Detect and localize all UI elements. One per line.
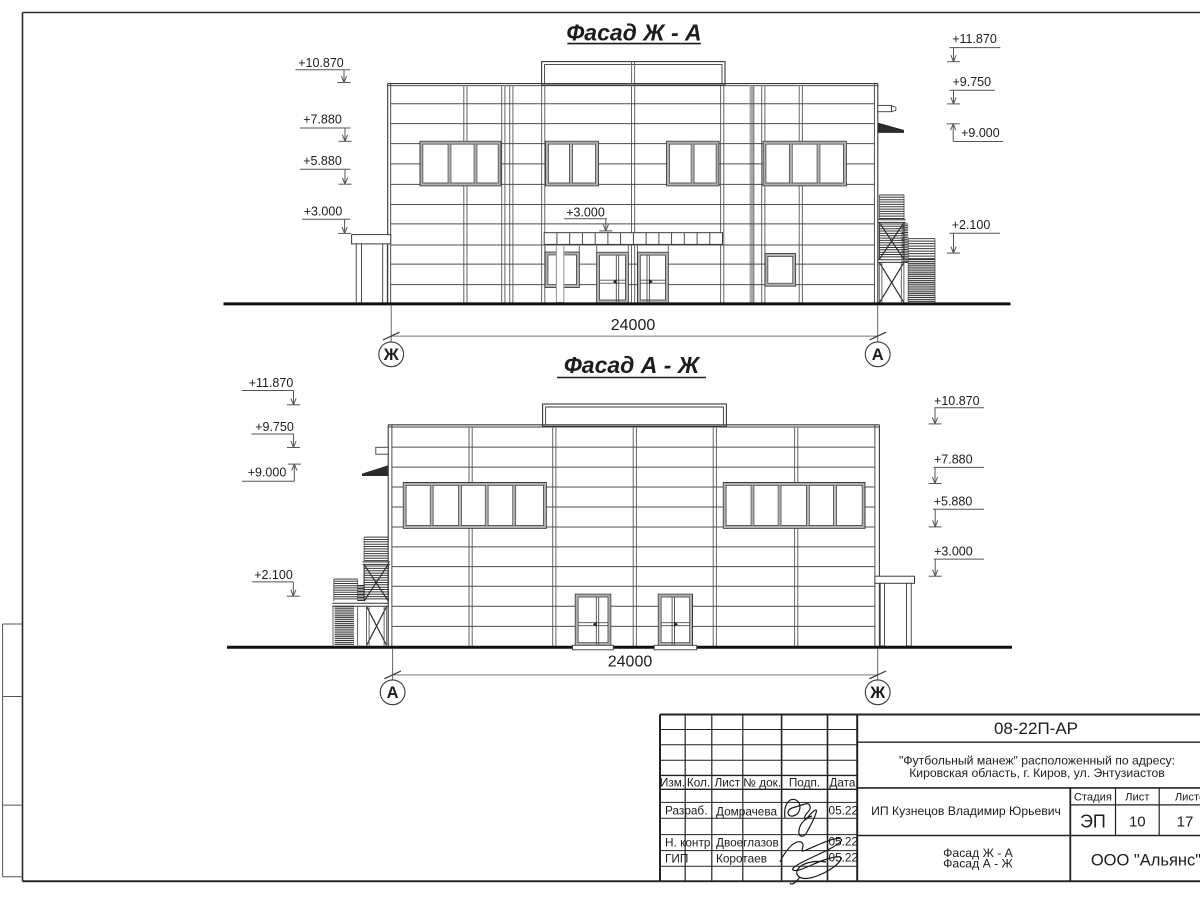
svg-text:Домрачева: Домрачева bbox=[716, 804, 777, 818]
svg-text:Дата: Дата bbox=[829, 775, 856, 789]
svg-text:ГИП: ГИП bbox=[665, 851, 688, 865]
svg-text:А: А bbox=[872, 346, 884, 364]
svg-text:Листов: Листов bbox=[1175, 791, 1200, 803]
svg-text:05.22: 05.22 bbox=[829, 803, 859, 817]
svg-text:Изм.: Изм. bbox=[660, 775, 685, 789]
svg-text:+5.880: +5.880 bbox=[934, 495, 973, 509]
svg-text:Фасад А - Ж: Фасад А - Ж bbox=[564, 352, 701, 378]
svg-text:Лист: Лист bbox=[714, 775, 740, 789]
svg-text:+7.880: +7.880 bbox=[934, 453, 973, 467]
svg-text:ИП Кузнецов Владимир Юрьевич: ИП Кузнецов Владимир Юрьевич bbox=[871, 804, 1061, 818]
svg-text:+10.870: +10.870 bbox=[298, 56, 344, 70]
svg-text:А: А bbox=[387, 684, 399, 702]
svg-text:24000: 24000 bbox=[611, 317, 656, 334]
svg-text:Ж: Ж bbox=[869, 684, 885, 702]
svg-text:Фасад Ж - А: Фасад Ж - А bbox=[566, 20, 701, 46]
svg-text:+11.870: +11.870 bbox=[952, 32, 997, 46]
svg-text:Н. контр.: Н. контр. bbox=[665, 835, 714, 849]
svg-text:+11.870: +11.870 bbox=[249, 376, 294, 390]
svg-text:Кол.: Кол. bbox=[687, 775, 710, 789]
svg-text:+2.100: +2.100 bbox=[952, 218, 991, 232]
svg-text:Двоеглазов: Двоеглазов bbox=[716, 835, 779, 849]
svg-text:ООО "Альянс": ООО "Альянс" bbox=[1091, 852, 1200, 870]
svg-text:+9.000: +9.000 bbox=[961, 126, 1000, 140]
svg-text:+3.000: +3.000 bbox=[934, 544, 973, 558]
svg-text:Лист: Лист bbox=[1125, 791, 1149, 803]
svg-text:Ж: Ж bbox=[383, 346, 399, 364]
svg-text:+5.880: +5.880 bbox=[303, 154, 342, 168]
svg-text:Фасад А - Ж: Фасад А - Ж bbox=[943, 857, 1013, 871]
svg-text:№ док.: № док. bbox=[743, 775, 781, 789]
svg-text:ЭП: ЭП bbox=[1080, 812, 1106, 832]
svg-text:+9.750: +9.750 bbox=[953, 75, 992, 89]
svg-text:Кировская область, г. Киров, у: Кировская область, г. Киров, ул. Энтузиа… bbox=[909, 766, 1165, 780]
svg-text:10: 10 bbox=[1129, 814, 1146, 831]
svg-text:17: 17 bbox=[1177, 814, 1194, 831]
svg-text:Стадия: Стадия bbox=[1074, 791, 1112, 803]
svg-text:Разраб.: Разраб. bbox=[665, 803, 707, 817]
svg-text:+9.750: +9.750 bbox=[255, 420, 294, 434]
svg-text:+7.880: +7.880 bbox=[303, 112, 342, 126]
svg-text:+2.100: +2.100 bbox=[254, 568, 293, 582]
svg-text:+3.000: +3.000 bbox=[566, 205, 605, 219]
svg-text:Подп.: Подп. bbox=[789, 775, 820, 789]
svg-text:24000: 24000 bbox=[608, 654, 653, 671]
svg-text:08-22П-АР: 08-22П-АР bbox=[994, 719, 1078, 738]
svg-text:+3.000: +3.000 bbox=[304, 204, 343, 218]
svg-text:+10.870: +10.870 bbox=[934, 394, 980, 408]
svg-text:Коротаев: Коротаев bbox=[716, 851, 767, 865]
svg-text:+9.000: +9.000 bbox=[248, 466, 287, 480]
